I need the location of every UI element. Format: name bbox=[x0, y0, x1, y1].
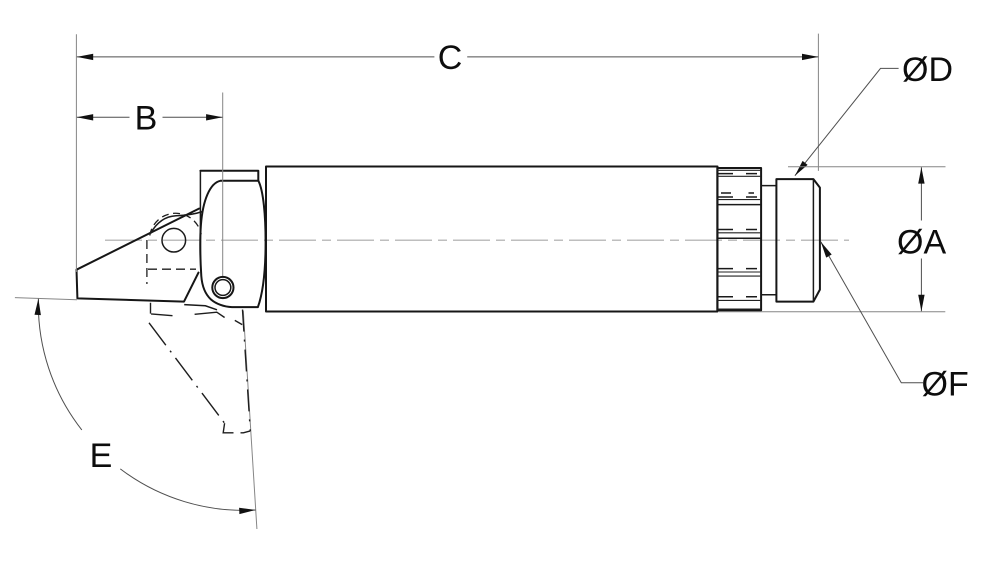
svg-text:ØD: ØD bbox=[902, 51, 953, 89]
svg-text:C: C bbox=[438, 39, 463, 77]
svg-text:ØF: ØF bbox=[922, 365, 969, 403]
svg-text:ØA: ØA bbox=[897, 224, 946, 262]
svg-text:B: B bbox=[135, 99, 158, 137]
svg-text:E: E bbox=[90, 437, 113, 475]
